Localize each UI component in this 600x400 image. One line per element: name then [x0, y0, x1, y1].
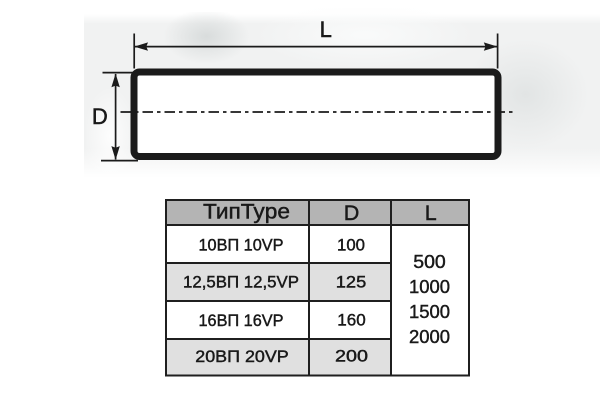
svg-text:160: 160 — [337, 311, 366, 330]
svg-text:10ВП 10VP: 10ВП 10VP — [199, 236, 284, 255]
svg-text:12,5ВП 12,5VP: 12,5ВП 12,5VP — [183, 273, 299, 292]
svg-text:100: 100 — [337, 236, 365, 255]
svg-text:16ВП 16VP: 16ВП 16VP — [199, 311, 284, 330]
svg-text:125: 125 — [336, 273, 367, 292]
svg-text:L: L — [425, 201, 437, 225]
svg-text:500: 500 — [413, 251, 446, 272]
svg-text:1000: 1000 — [409, 276, 450, 297]
svg-text:200: 200 — [335, 347, 368, 366]
svg-text:2000: 2000 — [409, 326, 450, 347]
svg-text:L: L — [320, 17, 332, 42]
svg-text:ТипType: ТипType — [203, 200, 290, 223]
svg-text:D: D — [344, 201, 360, 225]
svg-text:D: D — [92, 104, 108, 129]
svg-text:1500: 1500 — [409, 301, 450, 322]
svg-text:20ВП 20VP: 20ВП 20VP — [195, 347, 289, 366]
